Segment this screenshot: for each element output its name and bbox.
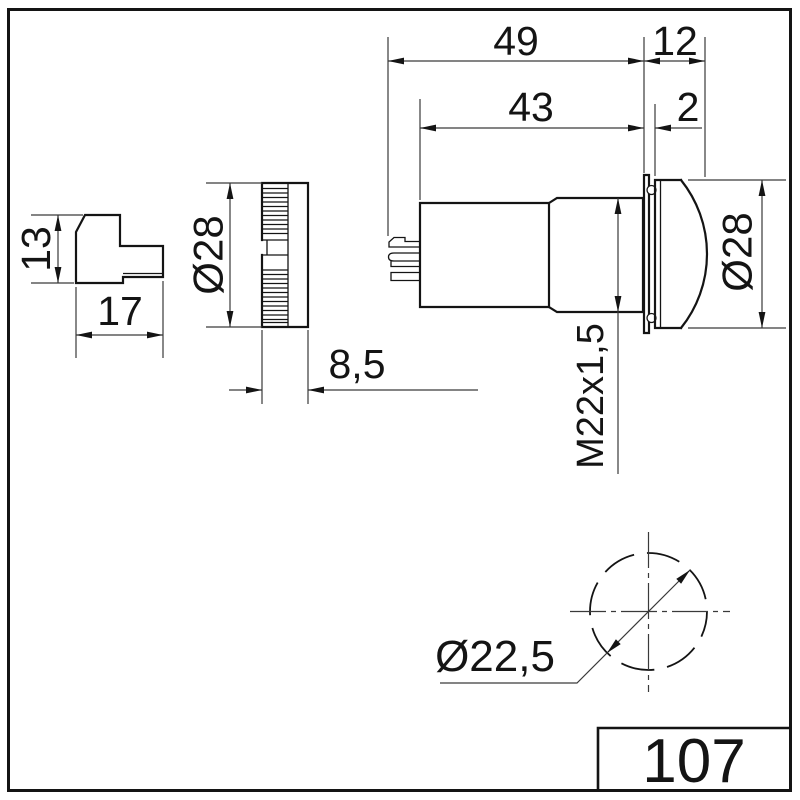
technical-drawing-page: 13 17 Ø28 8,5 — [0, 0, 800, 800]
dim-label-connector-height: 13 — [13, 226, 59, 272]
dim-label-overall-length: 49 — [493, 18, 539, 64]
dim-label-connector-length: 17 — [97, 288, 143, 334]
dim-label-front-length: 12 — [652, 18, 698, 64]
dim-label-cap-diameter: Ø28 — [185, 215, 232, 294]
technical-drawing: 13 17 Ø28 8,5 — [0, 0, 800, 800]
dim-label-bezel-offset: 2 — [677, 84, 700, 130]
mounting-hole-view: Ø22,5 — [435, 532, 730, 692]
dim-label-body-length: 43 — [508, 84, 554, 130]
dim-label-thread: M22x1,5 — [570, 323, 612, 469]
dim-label-lens-diameter: Ø28 — [714, 212, 761, 291]
connector-side-view: 13 17 — [13, 215, 163, 358]
lamp-side-view: 49 12 43 2 M22x1,5 Ø28 — [388, 18, 786, 474]
cap-side-view: Ø28 8,5 — [185, 183, 479, 404]
dim-label-mounting-hole: Ø22,5 — [435, 632, 555, 681]
drawing-border — [9, 10, 791, 791]
part-number: 107 — [642, 727, 745, 796]
dim-label-cap-depth: 8,5 — [329, 341, 386, 387]
title-block: 107 — [598, 727, 790, 796]
